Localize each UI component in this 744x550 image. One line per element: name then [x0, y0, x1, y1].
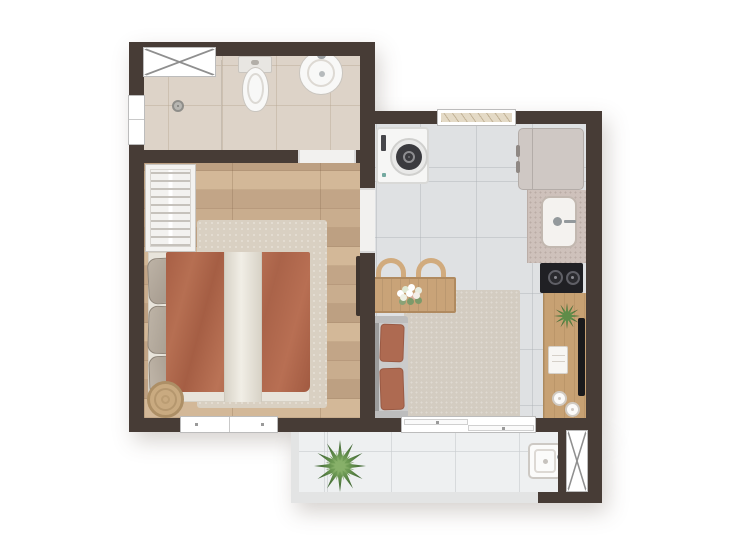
sink-faucet — [553, 217, 562, 226]
cooktop — [540, 263, 583, 293]
bed-runner — [224, 252, 262, 402]
laundry-tub — [528, 443, 562, 479]
wall-divider-lower — [360, 253, 375, 432]
bedroom-window — [180, 416, 278, 433]
shower-glass-line — [221, 60, 222, 150]
wall-right — [586, 111, 602, 432]
toilet-button — [251, 60, 259, 65]
wardrobe — [145, 164, 196, 252]
toilet-seat — [247, 73, 264, 104]
window-handle — [436, 421, 439, 424]
fridge — [518, 128, 584, 190]
wall-kitchen-top-left — [374, 111, 437, 124]
sofa-cushion — [379, 324, 404, 363]
wall-balcony-bottom — [538, 492, 602, 503]
tv — [578, 318, 585, 396]
washer-hub-dot — [408, 156, 410, 158]
window-louver — [441, 113, 512, 122]
window-handle — [502, 427, 505, 430]
bedroom-door-opening — [360, 188, 375, 253]
notepad-line — [552, 355, 565, 356]
window-handle — [195, 423, 198, 426]
table-flowers — [406, 290, 413, 297]
wall-bath-bottom — [144, 150, 298, 163]
slider-panel — [468, 425, 534, 431]
fridge-door-line — [532, 129, 533, 189]
window-divider — [229, 417, 230, 432]
bowl-dot — [558, 397, 561, 400]
sofa — [370, 316, 408, 418]
shower-drain — [172, 100, 184, 112]
balcony-sliding-door — [401, 416, 536, 433]
bowl-dot — [571, 408, 574, 411]
wall-bed-bottom-left — [129, 418, 180, 432]
tub-drain — [543, 459, 548, 464]
sofa-arm — [370, 316, 408, 323]
kitchen-window — [437, 109, 516, 126]
notepad-line — [552, 361, 565, 362]
bowl — [565, 402, 580, 417]
pouf-center — [161, 395, 170, 404]
washing-machine — [376, 127, 429, 184]
burner-dot — [554, 276, 557, 279]
window-handle — [261, 423, 264, 426]
sofa-cushion — [379, 368, 404, 411]
wall-bed-bottom-right — [278, 418, 374, 432]
bowl — [552, 391, 567, 406]
basin-drain — [319, 71, 325, 77]
bathroom-window — [143, 47, 216, 77]
floor-plan — [0, 0, 744, 550]
wall-bath-bottom-stub — [356, 150, 375, 163]
notepad — [548, 346, 568, 374]
dining-table — [371, 277, 456, 313]
fridge-handle — [516, 145, 520, 157]
shower-window — [128, 95, 145, 145]
fridge-handle — [516, 161, 520, 173]
kitchen-sink — [541, 196, 577, 248]
washer-drawer — [381, 135, 386, 151]
pouf — [147, 381, 184, 418]
washer-led — [382, 173, 386, 177]
burner-dot — [571, 276, 574, 279]
balcony-parapet — [291, 492, 538, 503]
washer-door — [390, 138, 428, 176]
wall-living-bottom-left — [374, 418, 401, 432]
wall-divider-upper — [360, 42, 375, 188]
bathroom-door-opening — [298, 150, 356, 163]
drain-dot — [177, 105, 179, 107]
window-divider — [129, 119, 144, 120]
balcony-window — [566, 430, 588, 492]
wardrobe-clothes — [150, 169, 191, 247]
toilet-bowl — [242, 67, 269, 112]
sink-faucet-handle — [564, 220, 576, 223]
